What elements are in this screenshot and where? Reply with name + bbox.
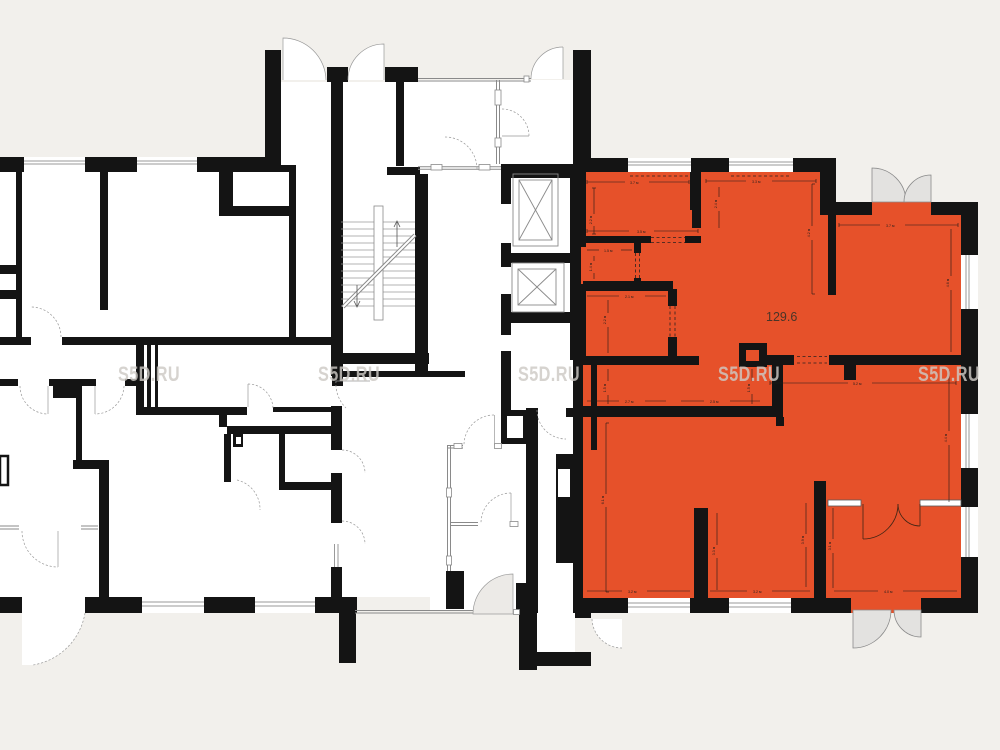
svg-text:4.0 м: 4.0 м	[884, 590, 893, 594]
svg-text:S5D.RU: S5D.RU	[118, 363, 180, 386]
svg-text:1.5 м: 1.5 м	[604, 249, 613, 253]
svg-text:2.7 м: 2.7 м	[625, 400, 634, 404]
svg-text:S5D.RU: S5D.RU	[918, 363, 980, 386]
svg-text:2.1 м: 2.1 м	[625, 295, 634, 299]
svg-text:3.5 м: 3.5 м	[637, 230, 646, 234]
svg-text:4.2 м: 4.2 м	[807, 228, 811, 237]
svg-text:3.2 м: 3.2 м	[753, 590, 762, 594]
svg-text:2.4 м: 2.4 м	[714, 199, 718, 208]
svg-text:1.5 м: 1.5 м	[603, 383, 607, 392]
svg-text:3.3 м: 3.3 м	[752, 180, 761, 184]
svg-text:1.4 м: 1.4 м	[589, 262, 593, 271]
svg-text:S5D.RU: S5D.RU	[318, 363, 380, 386]
svg-text:5.2 м: 5.2 м	[853, 382, 862, 386]
svg-text:3.7 м: 3.7 м	[630, 181, 639, 185]
svg-text:4.4 м: 4.4 м	[944, 433, 948, 442]
svg-text:4.6 м: 4.6 м	[946, 278, 950, 287]
svg-text:3.3 м: 3.3 м	[712, 546, 716, 555]
svg-text:3.9 м: 3.9 м	[801, 535, 805, 544]
svg-text:3.2 м: 3.2 м	[628, 590, 637, 594]
svg-text:6.1 м: 6.1 м	[601, 495, 605, 504]
svg-text:129.6: 129.6	[766, 310, 797, 324]
svg-text:2.2 м: 2.2 м	[589, 215, 593, 224]
svg-text:3.7 м: 3.7 м	[886, 224, 895, 228]
svg-text:S5D.RU: S5D.RU	[518, 363, 580, 386]
svg-text:2.2 м: 2.2 м	[603, 315, 607, 324]
svg-text:2.5 м: 2.5 м	[710, 400, 719, 404]
svg-text:S5D.RU: S5D.RU	[718, 363, 780, 386]
svg-text:3.1 м: 3.1 м	[828, 541, 832, 550]
